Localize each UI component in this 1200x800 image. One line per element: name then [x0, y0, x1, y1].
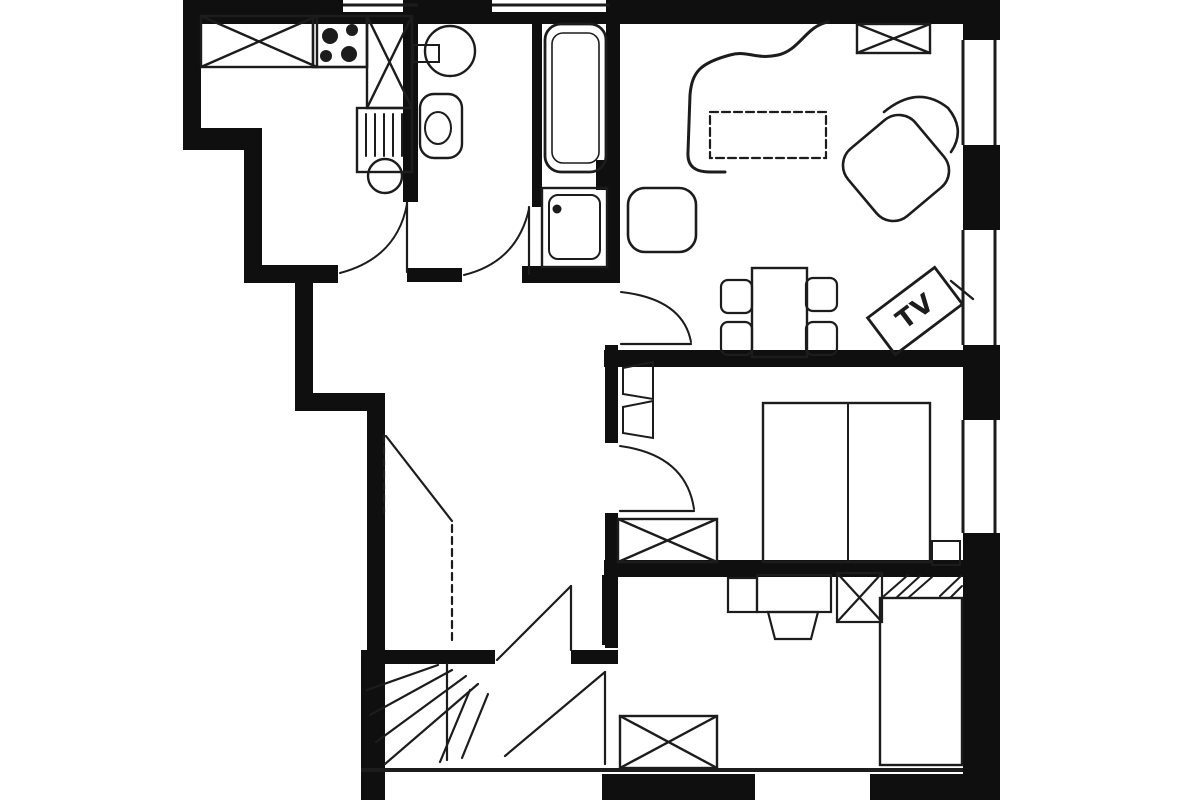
left-wall-upper — [183, 0, 201, 150]
hall-south-wall-west — [378, 650, 495, 664]
top-wall-mid — [418, 0, 492, 24]
hall-south-wall-east — [571, 650, 618, 664]
stove-burner-3 — [320, 50, 332, 62]
right-wall-1 — [963, 145, 1000, 230]
paper-background — [0, 0, 1200, 800]
right-wall-2 — [963, 345, 1000, 420]
living-bedroom1-wall — [604, 350, 963, 367]
floor-plan-drawing: TV — [0, 0, 1200, 800]
wall-junction — [596, 160, 620, 190]
hall-west-wall-upper — [295, 283, 313, 410]
bedroom2-west-wall — [602, 575, 618, 645]
bottom-wall-mid — [602, 774, 755, 800]
bath-south-wall — [522, 266, 620, 283]
stove-burner-2 — [346, 24, 358, 36]
top-wall-west — [183, 0, 343, 24]
right-wall-3 — [963, 533, 1000, 800]
left-wall-bottom — [361, 650, 385, 800]
hall-west-wall-lower — [367, 393, 385, 652]
top-wall-east — [610, 0, 963, 24]
wc-south-wall — [407, 268, 462, 282]
kitchen-south-wall — [244, 265, 338, 283]
left-wall-mid — [244, 128, 262, 283]
corner-northeast — [963, 0, 1000, 40]
stove-burner-4 — [341, 46, 357, 62]
floor-plan-page: TV — [0, 0, 1200, 800]
shower-drain — [553, 205, 562, 214]
wc-bath-wall — [532, 14, 542, 207]
top-window2-sill — [492, 12, 610, 24]
bottom-wall-east — [870, 774, 1000, 800]
stove-burner-1 — [322, 28, 338, 44]
